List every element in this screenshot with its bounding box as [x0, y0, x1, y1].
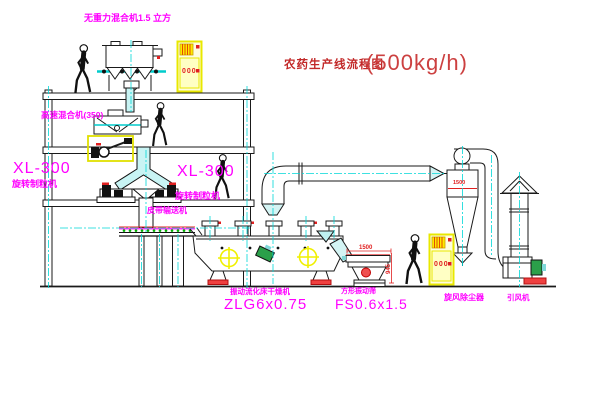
- person-figure-top: [75, 45, 90, 93]
- exhaust-duct: [262, 163, 447, 216]
- fluid-bed-dryer-drawing: [190, 221, 353, 285]
- process-flow-diagram: 农药生产线流程图 (500kg/h) 无重力混合机1.5 立方 高速混合机(35…: [0, 0, 600, 403]
- control-cabinet-right: [430, 235, 454, 285]
- diagram-capacity: (500kg/h): [366, 50, 468, 76]
- control-cabinet-top: [178, 42, 202, 92]
- cyclone-label: 旋风除尘器: [444, 294, 484, 302]
- cabinet-right-display: 000: [434, 261, 449, 268]
- granulator-left-model: XL-300: [13, 161, 71, 177]
- screen-height-dimension: 945: [386, 264, 392, 274]
- cyclone-dimension: 1500: [453, 180, 465, 186]
- screen-label: 方形振动筛: [341, 288, 376, 295]
- belt-conveyor-label: 皮带输送机: [147, 207, 187, 215]
- cabinet-top-display: 000: [182, 68, 197, 75]
- granulator-left-name: 旋转制粒机: [12, 180, 57, 189]
- granulator-left-drawing: [97, 183, 135, 203]
- fan-label: 引风机: [507, 294, 530, 302]
- dryer-model: ZLG6x0.75: [224, 297, 307, 312]
- fan-drawing: [500, 176, 546, 284]
- gravity-mixer-drawing: [97, 42, 166, 113]
- high-speed-mixer-label: 高速混合机(350): [41, 111, 103, 120]
- person-figure-ground: [407, 235, 422, 284]
- cyclone-drawing: [447, 148, 516, 271]
- screen-width-dimension: 1500: [359, 245, 372, 251]
- screen-model: FS0.6x1.5: [335, 297, 408, 311]
- dryer-label: 振动流化床干燥机: [230, 288, 290, 296]
- granulator-right-name: 旋转制粒机: [175, 192, 220, 201]
- person-figure-mezzanine: [153, 103, 166, 146]
- gravity-mixer-label: 无重力混合机1.5 立方: [84, 14, 171, 23]
- granulator-right-model: XL-300: [177, 164, 235, 180]
